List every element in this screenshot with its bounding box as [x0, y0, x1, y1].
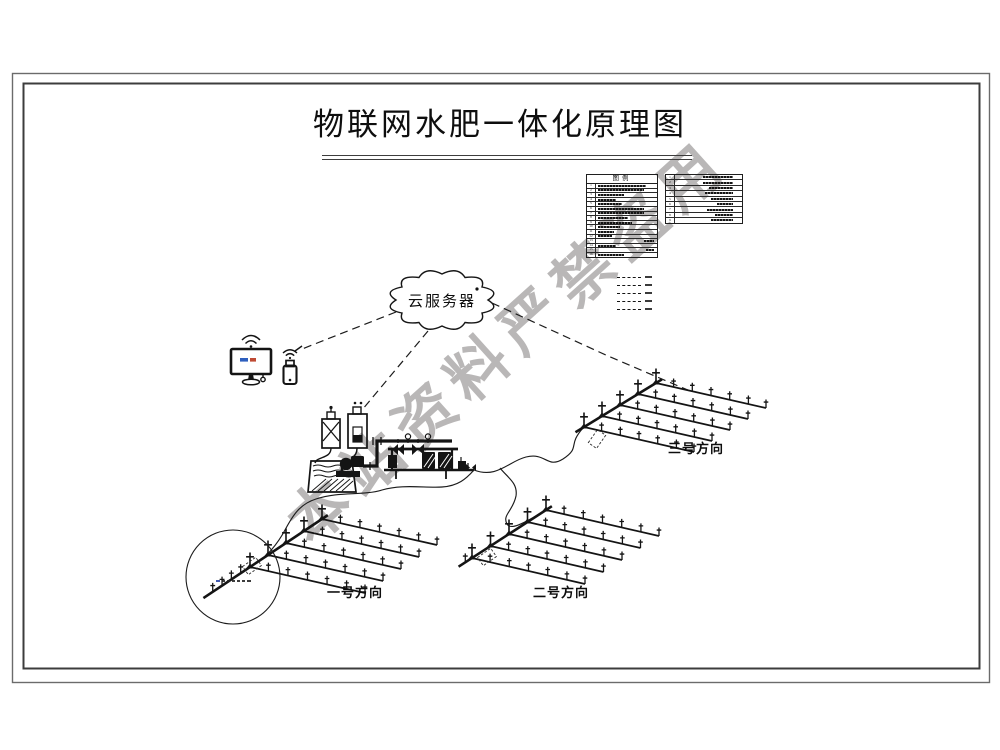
line-type-sample	[617, 281, 652, 289]
legend-row: 9	[666, 217, 742, 222]
legend-row-number: 9	[587, 221, 596, 225]
legend-row-text	[715, 214, 733, 216]
line-type-sample	[617, 305, 652, 313]
cloud-server-icon: 云服务器	[390, 271, 494, 330]
legend-row-text	[598, 189, 644, 191]
irrigation-grid-3	[575, 369, 768, 453]
legend-row-number: 4	[666, 191, 675, 195]
drawing-title: 物联网水肥一体化原理图	[0, 99, 1000, 144]
inner-frame	[24, 84, 980, 669]
legend-row-number: 3	[666, 186, 675, 190]
pipeline-to-field2	[500, 468, 545, 527]
irrigation-grid-2	[459, 496, 662, 585]
fertigation-station	[308, 402, 476, 492]
pump-icon	[336, 456, 364, 477]
title-underline	[322, 155, 692, 160]
legend-row-number: 5	[666, 197, 675, 201]
legend-row-number: 2	[587, 189, 596, 193]
outer-frame	[13, 74, 990, 683]
legend-row-text	[598, 231, 614, 233]
link-cloud-to-field	[492, 303, 690, 391]
legend-row-text	[598, 194, 624, 196]
legend-row-number: 7	[666, 207, 675, 211]
legend-row-number: 3	[587, 193, 596, 197]
legend-row-number: 11	[587, 230, 596, 234]
legend-row-text	[707, 209, 733, 211]
dashed-line-sample	[617, 293, 641, 294]
legend-row-number: 13	[587, 239, 596, 243]
legend-row-text	[598, 222, 632, 224]
legend-title: 图例	[587, 175, 657, 184]
pipeline-to-field1	[257, 470, 474, 563]
sample-label	[645, 292, 652, 294]
legend-row-number: 12	[587, 235, 596, 239]
mobile-phone-icon	[283, 346, 302, 384]
legend-row-number: 7	[587, 212, 596, 216]
legend-row-number: 10	[587, 225, 596, 229]
legend-row-text	[598, 208, 644, 210]
legend-row-text	[644, 240, 654, 242]
legend-row-text	[711, 219, 733, 221]
legend-table-secondary-body: 123456789	[666, 175, 742, 223]
dashed-line-sample	[617, 285, 641, 286]
monitor-plug	[261, 377, 265, 381]
irrigation-grid-1	[203, 505, 439, 599]
legend-row-number: 9	[666, 218, 675, 222]
legend-row-number: 1	[666, 175, 675, 179]
legend-row-text	[598, 235, 612, 237]
legend-row-text	[598, 245, 616, 247]
monitor-icon	[231, 336, 271, 385]
legend-row-number: 15	[587, 248, 596, 252]
field2-label: 二号方向	[533, 585, 589, 600]
legend-row-text	[705, 192, 733, 194]
fertilizer-tank-icon	[348, 402, 367, 448]
link-cloud-to-terminals	[302, 312, 396, 349]
line-type-sample	[617, 297, 652, 305]
legend-row-text	[598, 217, 628, 219]
wifi-icon	[283, 346, 302, 359]
legend-row-number: 14	[587, 244, 596, 248]
legend-row: 16	[587, 252, 657, 257]
pipeline-to-field3	[474, 428, 583, 472]
legend-table-main-body: 12345678910111213141516	[587, 184, 657, 257]
field1-label: 一号方向	[327, 585, 383, 600]
screen-red-bar	[250, 358, 256, 362]
legend-table-secondary: 123456789	[665, 174, 743, 224]
line-type-sample	[617, 289, 652, 297]
sample-label	[645, 284, 652, 286]
sample-label	[645, 300, 652, 302]
legend-row-number: 5	[587, 202, 596, 206]
legend-row-number: 8	[666, 213, 675, 217]
legend-row-text	[598, 185, 646, 187]
dashed-line-sample	[617, 277, 641, 278]
legend-row-text	[703, 176, 733, 178]
legend-row-number: 2	[666, 180, 675, 184]
legend-row-text	[598, 199, 616, 201]
link-cloud-to-controller	[362, 331, 428, 410]
drawing-page: 本站资料严禁盗用 物联网水肥一体化原理图 图例 1234567891011121…	[0, 0, 1000, 750]
line-type-sample	[617, 273, 652, 281]
legend-row-number: 4	[587, 198, 596, 202]
dashed-line-sample	[617, 301, 641, 302]
dashed-line-sample	[617, 309, 641, 310]
line-type-legend	[617, 273, 652, 313]
legend-row-text	[598, 226, 620, 228]
sample-label	[645, 276, 652, 278]
fertilizer-tank-icon	[322, 406, 340, 448]
legend-row-text	[711, 198, 733, 200]
legend-row-text	[709, 187, 733, 189]
legend-row-text	[598, 203, 622, 205]
legend-row-text	[717, 203, 733, 205]
legend-row-text	[703, 182, 733, 184]
detail-marker	[588, 430, 605, 449]
screen-blue-bar	[240, 358, 248, 362]
field3-label: 三号方向	[668, 441, 724, 456]
wifi-icon	[242, 336, 260, 348]
phone-button	[289, 379, 292, 382]
legend-row-number: 16	[587, 253, 596, 257]
cloud-dot	[475, 287, 478, 290]
legend-row-number: 6	[587, 207, 596, 211]
legend-row-text	[646, 249, 654, 251]
legend-row-number: 6	[666, 202, 675, 206]
legend-table-main: 图例 12345678910111213141516	[586, 174, 658, 258]
legend-row-text	[598, 254, 624, 256]
cloud-label: 云服务器	[408, 293, 476, 310]
legend-row-number: 8	[587, 216, 596, 220]
legend-row-text	[598, 212, 644, 214]
sample-label	[645, 308, 652, 310]
legend-row-number: 1	[587, 184, 596, 188]
